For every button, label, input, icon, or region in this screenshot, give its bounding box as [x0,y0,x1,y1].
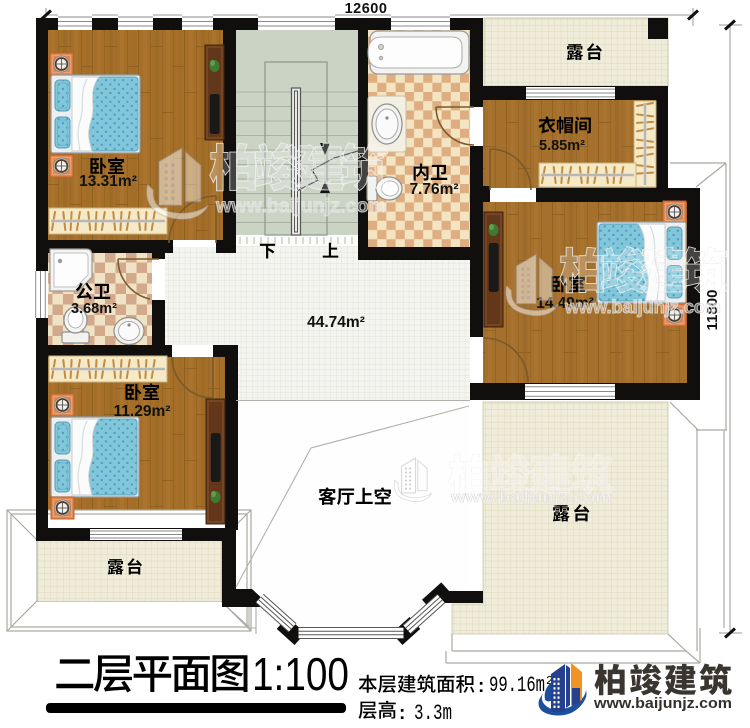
svg-text:44.74m²: 44.74m² [307,314,365,331]
svg-text:www.baijunjz.com: www.baijunjz.com [450,489,612,506]
svg-text:www.baijunjz.com: www.baijunjz.com [593,696,732,712]
svg-text:www.baijunjz.com: www.baijunjz.com [215,196,386,217]
svg-text:12600: 12600 [345,1,388,17]
svg-text::: : [478,676,484,697]
svg-text:1:100: 1:100 [252,648,349,700]
svg-text:www.baijunjz.com: www.baijunjz.com [564,297,721,317]
svg-text:11.29m²: 11.29m² [114,403,171,420]
svg-text:3.3m: 3.3m [414,701,452,726]
svg-text:7.76m²: 7.76m² [409,181,458,198]
svg-text:99.16m: 99.16m [489,673,545,698]
svg-text:3.68m²: 3.68m² [71,301,117,317]
svg-text:5.85m²: 5.85m² [539,138,585,154]
svg-text:13.31m²: 13.31m² [79,173,137,190]
svg-text::: : [399,703,405,724]
